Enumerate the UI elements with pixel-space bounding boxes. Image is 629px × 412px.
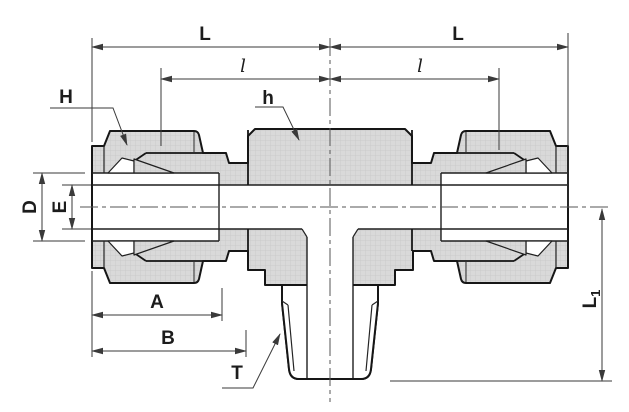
- dim-label-B: B: [161, 328, 175, 349]
- dim-label-L-right: L: [452, 24, 464, 45]
- tee-fitting-technical-drawing: L L l l H h D E A B T L1: [0, 0, 629, 412]
- dim-label-H: H: [59, 87, 73, 108]
- dim-label-T: T: [231, 363, 243, 384]
- drawing-canvas: L L l l H h D E A B T L1: [0, 0, 629, 412]
- dim-label-A: A: [150, 292, 164, 313]
- dim-label-L-left: L: [199, 24, 211, 45]
- dim-label-L1: L1: [580, 290, 603, 309]
- dim-label-E: E: [50, 201, 71, 214]
- dim-label-l-right: l: [417, 56, 423, 77]
- dim-label-l-left: l: [240, 56, 246, 77]
- dim-label-h: h: [262, 88, 274, 109]
- dim-label-D: D: [20, 200, 41, 214]
